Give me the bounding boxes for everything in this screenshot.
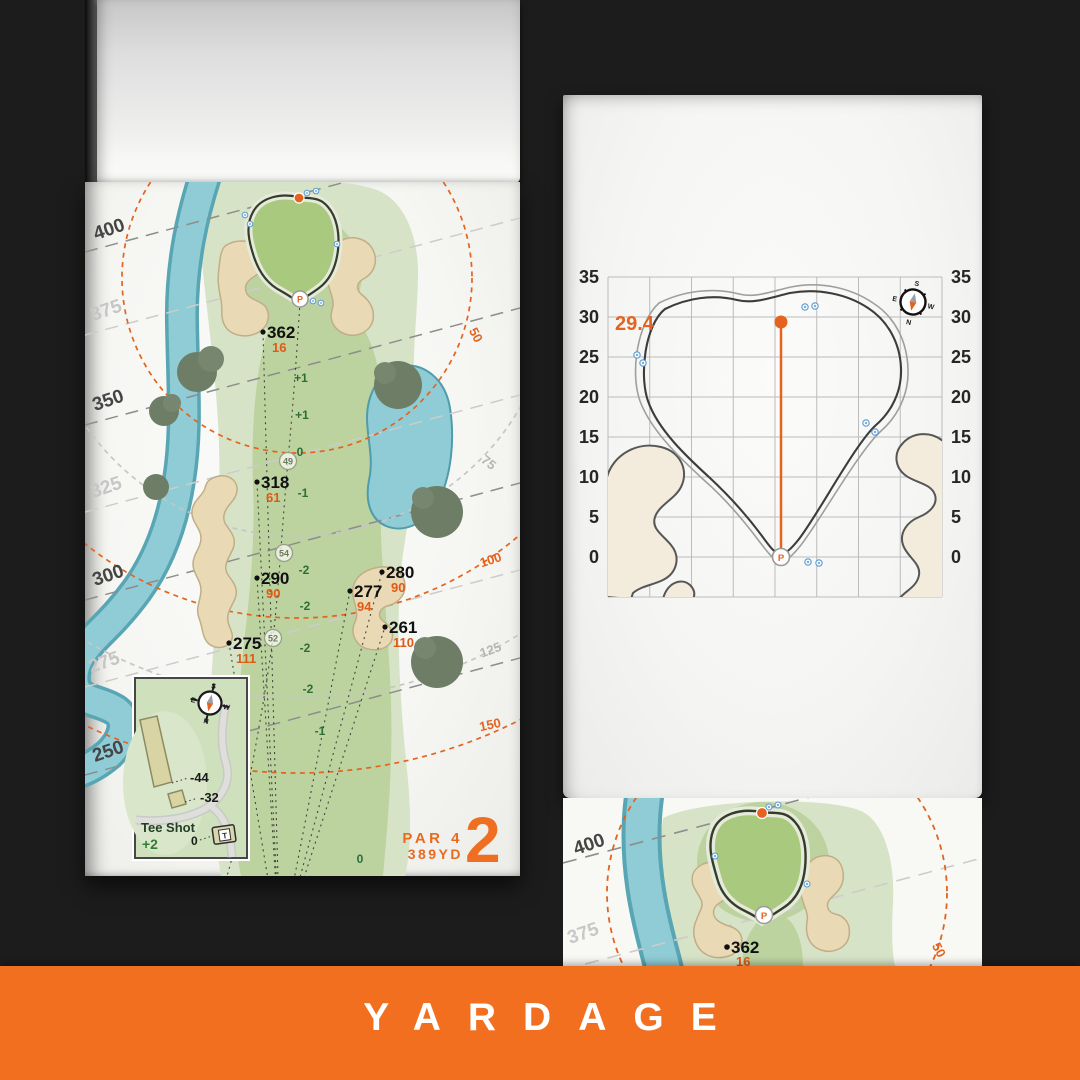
slope-label: +1: [295, 408, 309, 422]
marker-carry: 111: [236, 651, 256, 666]
axis-tick: 35: [579, 267, 599, 287]
hole-map-art: P: [85, 182, 520, 876]
compass-n: N: [905, 319, 911, 327]
slope-label: 0: [297, 445, 304, 459]
tree-icon: [374, 361, 422, 409]
axis-tick: 0: [951, 547, 961, 567]
circled-value: 49: [283, 457, 293, 467]
axis-tick: 10: [579, 467, 599, 487]
circled-value: 52: [268, 634, 278, 644]
slope-label: +1: [294, 371, 308, 385]
river: [642, 798, 665, 966]
hole-info: PAR 4 389YD 2: [402, 804, 500, 876]
yardage-banner: YARDAGE: [0, 966, 1080, 1080]
tee-inset-title: Tee Shot: [141, 820, 196, 835]
axis-tick: 10: [951, 467, 971, 487]
distance-label: 400: [91, 215, 128, 245]
green-chart-page: P 29.4 35 30 25 20 15 10 5 0 35 30 25 20…: [563, 95, 982, 798]
banner-title: YARDAGE: [363, 996, 743, 1050]
green-depth-value: 29.4: [615, 313, 655, 335]
slope-label: -1: [315, 724, 326, 738]
axis-tick: 30: [951, 307, 971, 327]
marker-carry: 61: [266, 490, 280, 505]
distance-label: 350: [90, 386, 127, 416]
arc-label: 100: [478, 549, 503, 570]
compass-icon: S N W E: [887, 277, 939, 331]
hole-yardage: 389YD: [408, 846, 463, 862]
green-front-marker: P: [292, 291, 308, 307]
slope-label: -2: [300, 599, 311, 613]
hole-par: PAR 4: [402, 830, 463, 847]
axis-tick: 35: [951, 267, 971, 287]
tee-inset-zero: 0: [191, 834, 198, 848]
axis-tick: 20: [951, 387, 971, 407]
marker-carry: 16: [736, 954, 750, 966]
marker-carry: 94: [357, 599, 372, 614]
marker-carry: 90: [266, 586, 280, 601]
bunker: [663, 581, 694, 599]
compass-s: S: [914, 280, 920, 288]
marker-carry: 90: [391, 580, 405, 595]
marker-carry: 16: [272, 340, 286, 355]
axis-tick: 30: [579, 307, 599, 327]
axis-tick: 25: [951, 347, 971, 367]
compass-e: E: [892, 296, 898, 304]
green-chart-art: P 29.4 35 30 25 20 15 10 5 0 35 30 25 20…: [563, 95, 982, 798]
axis-tick: 5: [589, 507, 599, 527]
arc-label: 150: [478, 715, 502, 734]
slope-label: -2: [299, 563, 310, 577]
distance-label: 375: [88, 296, 125, 326]
tree-icon: [411, 486, 463, 538]
tee-shot-inset: S N W E -44 -32: [123, 675, 250, 861]
circled-value: 54: [279, 549, 289, 559]
marker-carry: 110: [393, 635, 414, 650]
axis-tick: 15: [951, 427, 971, 447]
axis-left: 35 30 25 20 15 10 5 0: [579, 267, 599, 567]
hole-map-page: P: [85, 182, 520, 876]
green-front-marker: P: [773, 549, 790, 566]
arc-label: 50: [466, 325, 486, 345]
axis-tick: 15: [579, 427, 599, 447]
slope-label: -1: [298, 486, 309, 500]
axis-tick: 25: [579, 347, 599, 367]
slope-label: -2: [303, 682, 314, 696]
next-hole-page-partial: P 362 16 400 375 50: [563, 798, 982, 966]
axis-tick: 20: [579, 387, 599, 407]
tree-icon: [143, 474, 169, 500]
arc-labels: 50 75 100 125 150: [466, 325, 503, 734]
axis-tick: 0: [589, 547, 599, 567]
bunker: [607, 446, 684, 599]
depth-measure: [775, 316, 788, 558]
depth-dot: [775, 316, 788, 329]
axis-tick: 5: [951, 507, 961, 527]
axis-right: 35 30 25 20 15 10 5 0: [951, 267, 971, 567]
tree-icon: [411, 636, 463, 688]
slope-label: 0: [357, 852, 364, 866]
green-front-letter: P: [761, 911, 768, 922]
hole-number: 2: [465, 804, 501, 876]
tee-offset-a: -44: [190, 770, 210, 785]
green-front-letter: P: [297, 295, 303, 305]
arc-label: 125: [478, 639, 504, 661]
arc-label: 75: [478, 452, 499, 473]
partial-map-art: P 362 16 400 375 50: [563, 798, 982, 966]
compass-w: W: [927, 303, 935, 311]
yardage-book-product-photo: P: [0, 0, 1080, 1080]
flipped-page: [97, 0, 520, 183]
slope-label: -2: [300, 641, 311, 655]
distance-label: 325: [88, 473, 125, 503]
tee-offset-b: -32: [200, 790, 219, 805]
pin-dot: [757, 808, 768, 819]
pin-dot: [294, 193, 304, 203]
green-front-letter: P: [778, 553, 785, 564]
tee-inset-score: +2: [142, 836, 158, 852]
green-front-marker: P: [756, 907, 773, 924]
tee-marker-icon: T: [212, 825, 236, 845]
